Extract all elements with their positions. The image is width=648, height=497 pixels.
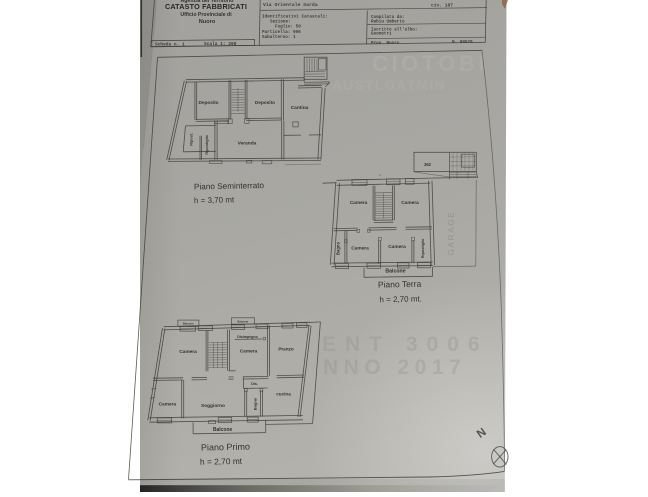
svg-text:Prov. Nuoro: Prov. Nuoro [371, 41, 400, 46]
svg-text:Geometri: Geometri [371, 32, 392, 37]
svg-text:Nuoro: Nuoro [199, 19, 216, 25]
svg-text:Rubiu Umberto: Rubiu Umberto [371, 19, 405, 24]
svg-text:Veranda: Veranda [238, 141, 257, 147]
svg-text:h = 3,70 mt: h = 3,70 mt [194, 195, 235, 205]
svg-text:h = 2,70 mt.: h = 2,70 mt. [379, 294, 422, 304]
svg-text:Piano Terra: Piano Terra [378, 279, 422, 290]
svg-text:Dis.: Dis. [251, 382, 258, 386]
svg-text:GARAGE: GARAGE [447, 210, 456, 255]
svg-text:Ufficio Provinciale di: Ufficio Provinciale di [180, 12, 232, 18]
svg-text:Balcone: Balcone [385, 269, 405, 275]
svg-text:CIOTOBI: CIOTOBI [372, 51, 488, 76]
svg-text:Via Orientale Sarda: Via Orientale Sarda [263, 2, 318, 8]
svg-text:Balcone: Balcone [213, 427, 233, 433]
svg-text:Disimpegno: Disimpegno [237, 335, 258, 339]
svg-text:N. 00570: N. 00570 [452, 40, 473, 45]
svg-text:Balcone: Balcone [183, 322, 194, 326]
svg-text:Camera: Camera [240, 349, 258, 355]
svg-text:h = 2,70 mt: h = 2,70 mt [200, 456, 243, 467]
svg-text:Camera: Camera [350, 200, 368, 206]
svg-text:Scala 1: 200: Scala 1: 200 [204, 41, 237, 47]
svg-text:civ. 187: civ. 187 [431, 2, 453, 8]
svg-text:Deposito: Deposito [255, 100, 275, 105]
svg-text:≈: ≈ [379, 173, 381, 177]
svg-text:cucina: cucina [276, 392, 291, 397]
svg-text:Ripost.: Ripost. [189, 133, 193, 146]
svg-text:NNO 2017: NNO 2017 [323, 356, 466, 379]
svg-text:Piano Primo: Piano Primo [201, 442, 250, 453]
svg-text:Bagno: Bagno [335, 242, 340, 255]
svg-text:Piano Seminterrato: Piano Seminterrato [194, 181, 265, 191]
svg-text:Soggiorno: Soggiorno [201, 403, 225, 409]
svg-text:Cantina: Cantina [291, 105, 309, 111]
svg-text:Camera: Camera [388, 244, 406, 250]
svg-text:Camera: Camera [351, 246, 369, 252]
svg-text:ENT 3006: ENT 3006 [322, 333, 489, 356]
svg-text:Bagno: Bagno [252, 397, 257, 410]
svg-text:Ripostiglio: Ripostiglio [205, 134, 209, 154]
svg-text:Balcone: Balcone [237, 319, 248, 323]
svg-text:Subalterno: 1: Subalterno: 1 [262, 35, 296, 40]
svg-text:Ripostiglio: Ripostiglio [421, 238, 425, 258]
svg-text:Camera: Camera [401, 200, 419, 206]
svg-text:Pranzo: Pranzo [278, 346, 294, 351]
svg-text:Particella: 996: Particella: 996 [262, 30, 301, 35]
svg-text:Deposito: Deposito [198, 100, 218, 105]
svg-text:AUSTLOATMIN: AUSTLOATMIN [332, 78, 446, 93]
svg-text:Camera: Camera [179, 349, 197, 355]
svg-text:362: 362 [424, 162, 432, 167]
